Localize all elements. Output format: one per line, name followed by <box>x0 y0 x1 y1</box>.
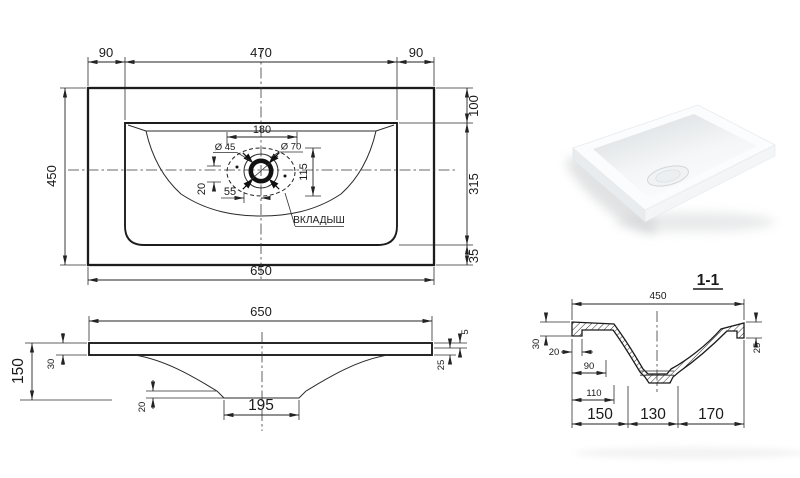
section-title: 1-1 <box>697 272 720 289</box>
dim-label-insert-depth: 115 <box>298 163 310 181</box>
drain-dot-left <box>236 166 239 169</box>
dim-section-bottom-offset: 110 <box>572 385 614 404</box>
dim-label-rim-width: 470 <box>250 45 272 60</box>
dim-label-drain-small: Ø 45 <box>215 142 236 153</box>
dim-label-lip: 5 <box>460 329 471 334</box>
dim-plan-depth: 450 <box>44 88 86 265</box>
dim-label-total-width: 650 <box>250 263 272 278</box>
insert-label: ВКЛАДЫШ <box>293 215 345 226</box>
dim-front-edge-thickness: 30 <box>46 333 87 369</box>
dim-label-front-offset: 35 <box>466 249 481 263</box>
dim-label-drain-large: Ø 70 <box>281 142 302 153</box>
dim-label-front-width: 650 <box>250 304 272 319</box>
dim-label-total-depth: 450 <box>44 165 59 187</box>
plan-view: 90 470 90 450 650 100 315 35 180 <box>44 45 481 285</box>
dim-label-boss-height: 20 <box>137 402 148 413</box>
dim-label-flange-height: 30 <box>531 339 542 350</box>
dim-label-seg-right: 170 <box>698 406 724 423</box>
scan-smudge <box>575 447 800 459</box>
dim-label-edge-thickness: 30 <box>46 359 57 370</box>
dim-label-seg-center: 130 <box>640 406 666 423</box>
dim-label-drain-offset-x: 55 <box>224 186 236 198</box>
dim-label-bottom-offset: 110 <box>586 388 601 399</box>
dim-front-width: 650 <box>89 304 432 341</box>
dim-section-depth: 450 <box>572 291 744 320</box>
section-view: 1-1 450 30 20 90 <box>531 272 763 428</box>
dim-label-wall-offset: 90 <box>584 361 595 372</box>
technical-drawing: 90 470 90 450 650 100 315 35 180 <box>0 0 800 478</box>
dim-section-right-edge: 25 <box>746 313 763 353</box>
dim-plan-width: 650 <box>88 263 434 285</box>
dim-label-drain-offset-y: 20 <box>196 183 208 195</box>
dim-label-rim: 25 <box>436 360 447 371</box>
dim-label-overhang-right: 90 <box>409 45 423 60</box>
dim-label-overhang-left: 90 <box>99 45 113 60</box>
section-profile <box>572 322 744 383</box>
drain-dot-right <box>284 175 287 178</box>
dim-label-rim-depth: 315 <box>466 173 481 195</box>
dim-section-segments: 150 130 170 <box>572 340 744 428</box>
dim-label-right-edge: 25 <box>752 343 763 354</box>
dim-label-seg-left: 150 <box>587 406 613 423</box>
front-view: 650 150 30 5 25 20 <box>10 304 471 431</box>
dim-front-boss-height: 20 <box>137 380 224 412</box>
dim-label-foot-width: 20 <box>549 347 560 358</box>
dim-front-lip: 5 25 <box>434 329 471 370</box>
dim-label-section-depth: 450 <box>650 291 667 302</box>
front-slab-outline <box>89 343 432 355</box>
front-bowl-outline <box>135 355 388 398</box>
dim-front-bottom-width: 195 <box>224 397 299 420</box>
dim-label-front-height: 150 <box>10 358 27 384</box>
dim-label-bottom-width: 195 <box>248 397 274 414</box>
drawing-sheet: 90 470 90 450 650 100 315 35 180 <box>0 0 800 478</box>
dim-label-back-offset: 100 <box>466 95 481 117</box>
dim-label-insert-width: 180 <box>253 124 271 136</box>
dim-section-wall-offset: 90 <box>572 360 606 377</box>
